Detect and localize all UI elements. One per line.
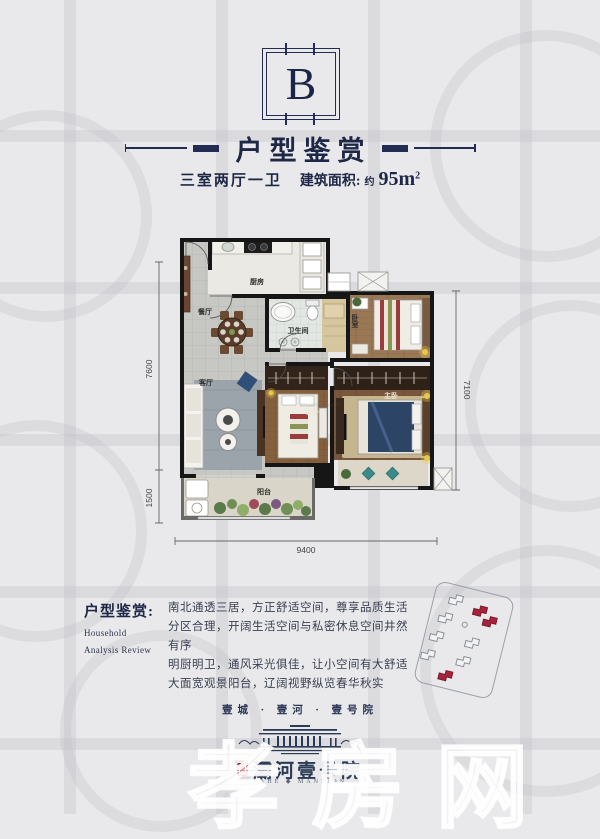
room-label-bathroom: 卫生间 bbox=[288, 326, 309, 335]
building-marker bbox=[419, 647, 441, 663]
dim-bottom: 9400 bbox=[297, 545, 316, 555]
room-label-bedroom: 卧室 bbox=[351, 313, 359, 329]
title-row: 户型鉴赏 bbox=[0, 132, 600, 164]
dim-left-main: 7600 bbox=[144, 359, 154, 378]
building-marker bbox=[437, 610, 459, 626]
room-label-living: 客厅 bbox=[198, 378, 213, 387]
room-label-balcony: 阳台 bbox=[257, 487, 271, 496]
analysis-heading: 户型鉴赏: bbox=[84, 600, 170, 621]
area-value: 95m bbox=[379, 168, 416, 190]
building-marker-highlighted bbox=[481, 614, 503, 630]
subtitle-row: 三室两厅一卫 建筑面积: 约 95m2 bbox=[0, 168, 600, 191]
badge-tick bbox=[313, 43, 315, 55]
living-furniture bbox=[184, 371, 265, 470]
page-title: 户型鉴赏 bbox=[229, 129, 372, 168]
area-label: 建筑面积: bbox=[300, 174, 361, 189]
dim-right: 7100 bbox=[462, 381, 470, 400]
site-watermark: 孝房网 bbox=[188, 742, 560, 834]
building-marker bbox=[455, 654, 477, 670]
area-value-sup: 2 bbox=[415, 171, 420, 182]
badge-tick bbox=[313, 113, 315, 125]
unit-type-badge: B bbox=[262, 48, 340, 120]
site-map-dot bbox=[461, 621, 468, 628]
tagline: 壹城 · 壹河 · 壹号院 bbox=[0, 702, 600, 717]
analysis-paragraph: 南北通透三居，方正舒适空间，尊享品质生活 分区合理，开阔生活空间与私密休息空间井… bbox=[168, 599, 408, 694]
room-label-dining: 餐厅 bbox=[197, 307, 212, 316]
plan-watermark: zhuangyi.com bbox=[300, 402, 340, 409]
badge-tick bbox=[285, 43, 287, 55]
floor-plan: 7600 1500 7100 9400 厨房 餐厅 卫生间 卧室 主卧 次卧 客… bbox=[140, 228, 470, 558]
title-ornament-left bbox=[125, 145, 219, 152]
floor-plan-svg: 7600 1500 7100 9400 厨房 餐厅 卫生间 卧室 主卧 次卧 客… bbox=[140, 228, 470, 558]
building-marker bbox=[463, 635, 485, 651]
analysis-heading-block: 户型鉴赏: Household Analysis Review bbox=[84, 600, 170, 655]
area-approx: 约 bbox=[365, 177, 375, 188]
badge-tick bbox=[285, 113, 287, 125]
building-marker bbox=[428, 629, 450, 645]
analysis-subheading-2: Analysis Review bbox=[84, 645, 170, 655]
title-ornament-right bbox=[382, 145, 476, 152]
room-count-text: 三室两厅一卫 bbox=[180, 173, 282, 189]
room-label-kitchen: 厨房 bbox=[250, 277, 264, 286]
analysis-subheading-1: Household bbox=[84, 628, 170, 638]
building-marker bbox=[447, 592, 469, 608]
wardrobes bbox=[265, 366, 430, 390]
building-marker-highlighted bbox=[437, 668, 459, 684]
room-label-master: 主卧 bbox=[384, 391, 398, 400]
unit-type-badge-inner-border bbox=[266, 52, 336, 116]
dim-left-balcony: 1500 bbox=[144, 488, 154, 507]
